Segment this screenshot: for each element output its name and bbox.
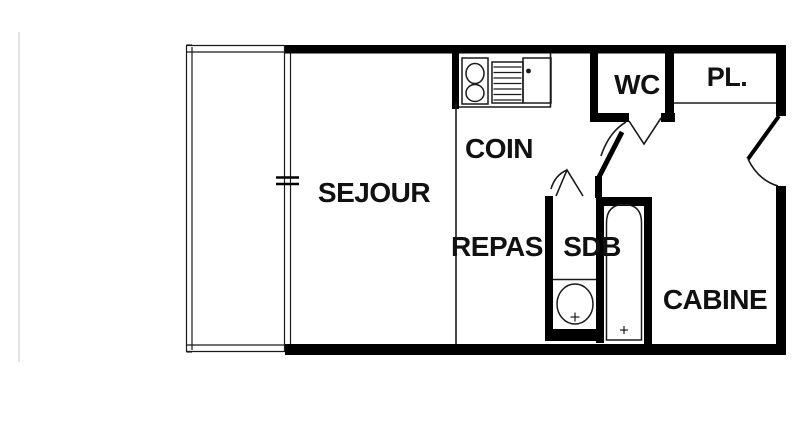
coin-label: COIN: [465, 133, 533, 164]
right-wall-upper: [776, 45, 786, 116]
double-sink-icon: [462, 58, 488, 104]
bathtub-icon: [607, 205, 642, 341]
sejour-label: SEJOUR: [318, 177, 430, 208]
sdb-bottom-wall: [545, 329, 601, 341]
kitchen-fixtures: [462, 58, 551, 104]
floor-plan: SEJOUR COIN REPAS WC PL. SDB CABINE: [0, 0, 800, 431]
balcony-railing: [187, 45, 286, 352]
kitchen-left-wall: [452, 53, 459, 109]
sdb-door: [551, 170, 583, 196]
hall-angled-wall: [599, 132, 622, 177]
window-wall: [285, 45, 291, 352]
worktop: [523, 58, 551, 103]
window-marker: [276, 178, 299, 185]
bottom-wall: [285, 344, 786, 355]
wc-bottom-wall: [590, 113, 629, 122]
bath-left-wall: [596, 198, 604, 343]
sdb-label: SDB: [563, 231, 621, 262]
cabine-label: CABINE: [663, 284, 767, 315]
placard-label: PL.: [707, 62, 748, 92]
washbasin-icon: [557, 284, 593, 324]
floor-plan-drawing: SEJOUR COIN REPAS WC PL. SDB CABINE: [0, 0, 800, 431]
top-wall: [285, 45, 786, 54]
entry-door: [748, 116, 779, 186]
bath-right-wall: [644, 197, 652, 344]
sdb-left-wall: [545, 196, 553, 341]
drain-mark: [526, 69, 531, 74]
stove-icon: [492, 62, 523, 103]
sdb-corner-wall: [595, 176, 602, 198]
room-labels: SEJOUR COIN REPAS WC PL. SDB CABINE: [318, 62, 767, 315]
right-wall-lower: [776, 186, 786, 354]
wc-label: WC: [614, 69, 660, 100]
wc-placard-divider-wall: [665, 53, 674, 122]
wc-left-wall: [590, 53, 598, 122]
repas-label: REPAS: [451, 231, 543, 262]
doors: [551, 116, 779, 196]
